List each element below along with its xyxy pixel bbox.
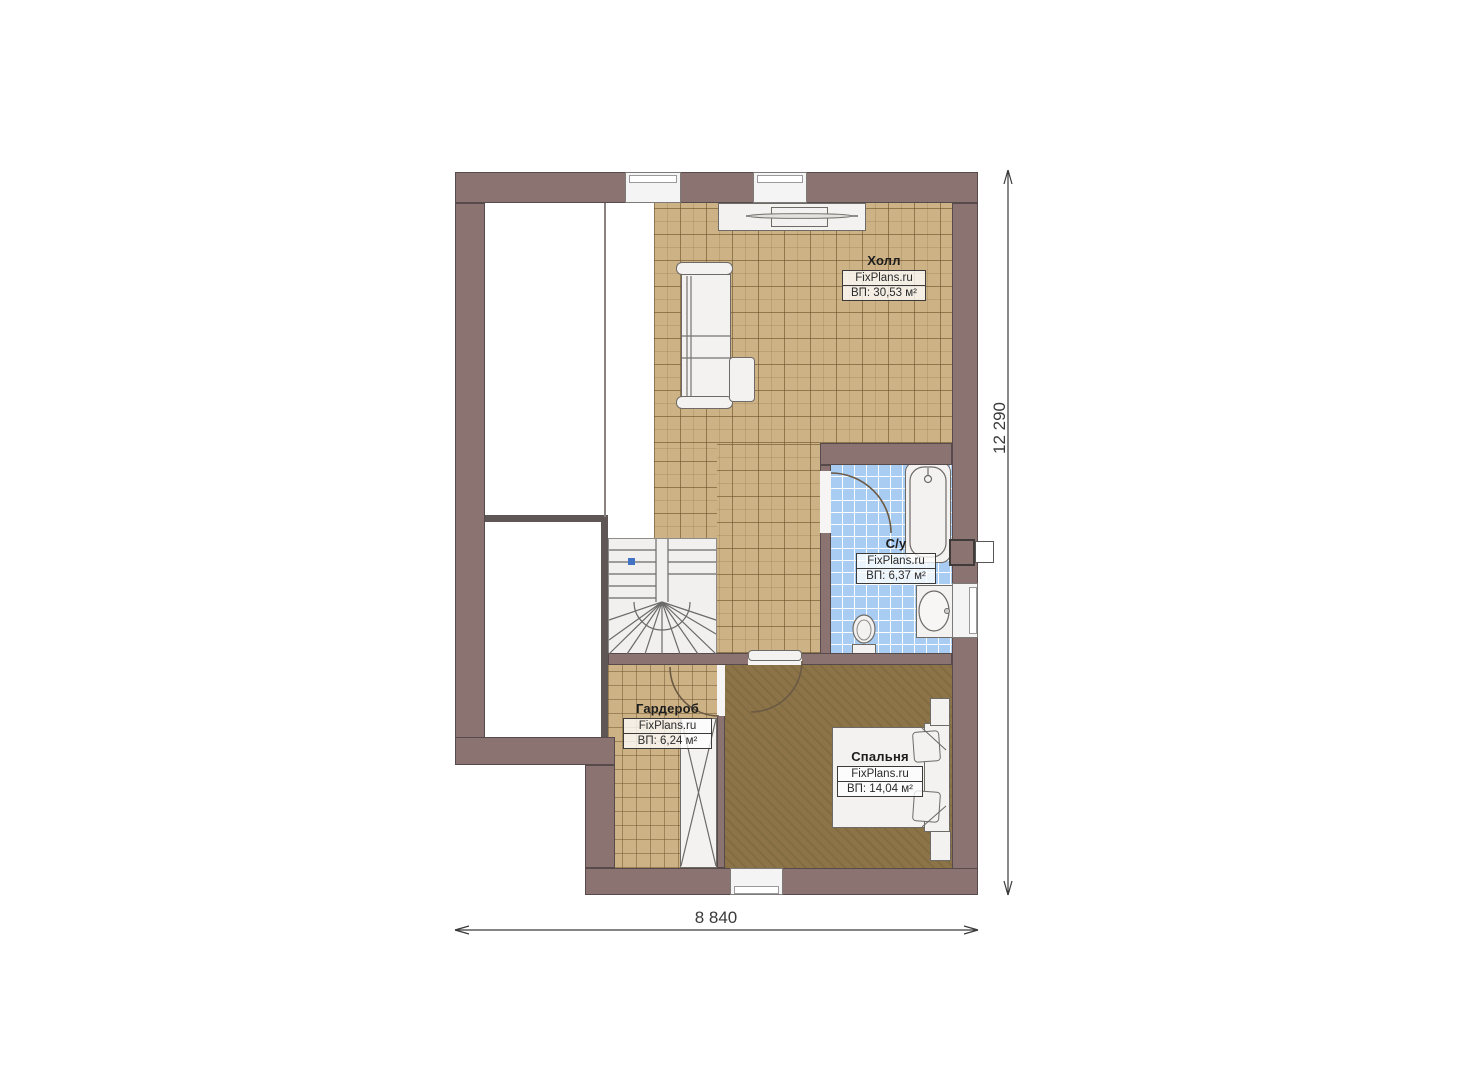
wardrobe-watermark: FixPlans.ru	[624, 719, 711, 733]
bathroom-area: ВП: 6,37 м²	[857, 568, 935, 583]
bathroom-title: С/у	[856, 536, 936, 551]
hall-title: Холл	[842, 253, 926, 268]
toilet-bowl	[853, 615, 875, 643]
wardrobe-label: Гардероб FixPlans.ru ВП: 6,24 м²	[623, 701, 712, 749]
sink-basin	[919, 591, 950, 631]
dimension-width-text: 8 840	[666, 908, 766, 928]
hall-area: ВП: 30,53 м²	[843, 285, 925, 300]
bedroom-area: ВП: 14,04 м²	[838, 781, 922, 796]
bathroom-label: С/у FixPlans.ru ВП: 6,37 м²	[856, 536, 936, 584]
wardrobe-label-box: FixPlans.ru ВП: 6,24 м²	[623, 718, 712, 749]
bathroom-watermark: FixPlans.ru	[857, 554, 935, 568]
staircase-treads	[609, 539, 716, 654]
floor-plan-canvas: Холл FixPlans.ru ВП: 30,53 м² С/у FixPla…	[0, 0, 1474, 1080]
bathroom-door-arc	[831, 473, 891, 533]
dimension-line-right	[1004, 170, 1012, 895]
hall-watermark: FixPlans.ru	[843, 271, 925, 285]
bathroom-label-box: FixPlans.ru ВП: 6,37 м²	[856, 553, 936, 584]
hall-table-lines	[746, 214, 858, 219]
bedroom-door-arc	[751, 661, 802, 712]
bedroom-watermark: FixPlans.ru	[838, 767, 922, 781]
hall-label: Холл FixPlans.ru ВП: 30,53 м²	[842, 253, 926, 301]
hall-label-box: FixPlans.ru ВП: 30,53 м²	[842, 270, 926, 301]
bed-lines	[922, 728, 946, 827]
dimension-height-text: 12 290	[990, 373, 1010, 483]
staircase-marker	[628, 558, 635, 565]
bedroom-label: Спальня FixPlans.ru ВП: 14,04 м²	[837, 749, 923, 797]
wardrobe-area: ВП: 6,24 м²	[624, 733, 711, 748]
bedroom-title: Спальня	[837, 749, 923, 764]
bedroom-label-box: FixPlans.ru ВП: 14,04 м²	[837, 766, 923, 797]
wardrobe-title: Гардероб	[623, 701, 712, 716]
sofa-lines	[682, 276, 730, 396]
